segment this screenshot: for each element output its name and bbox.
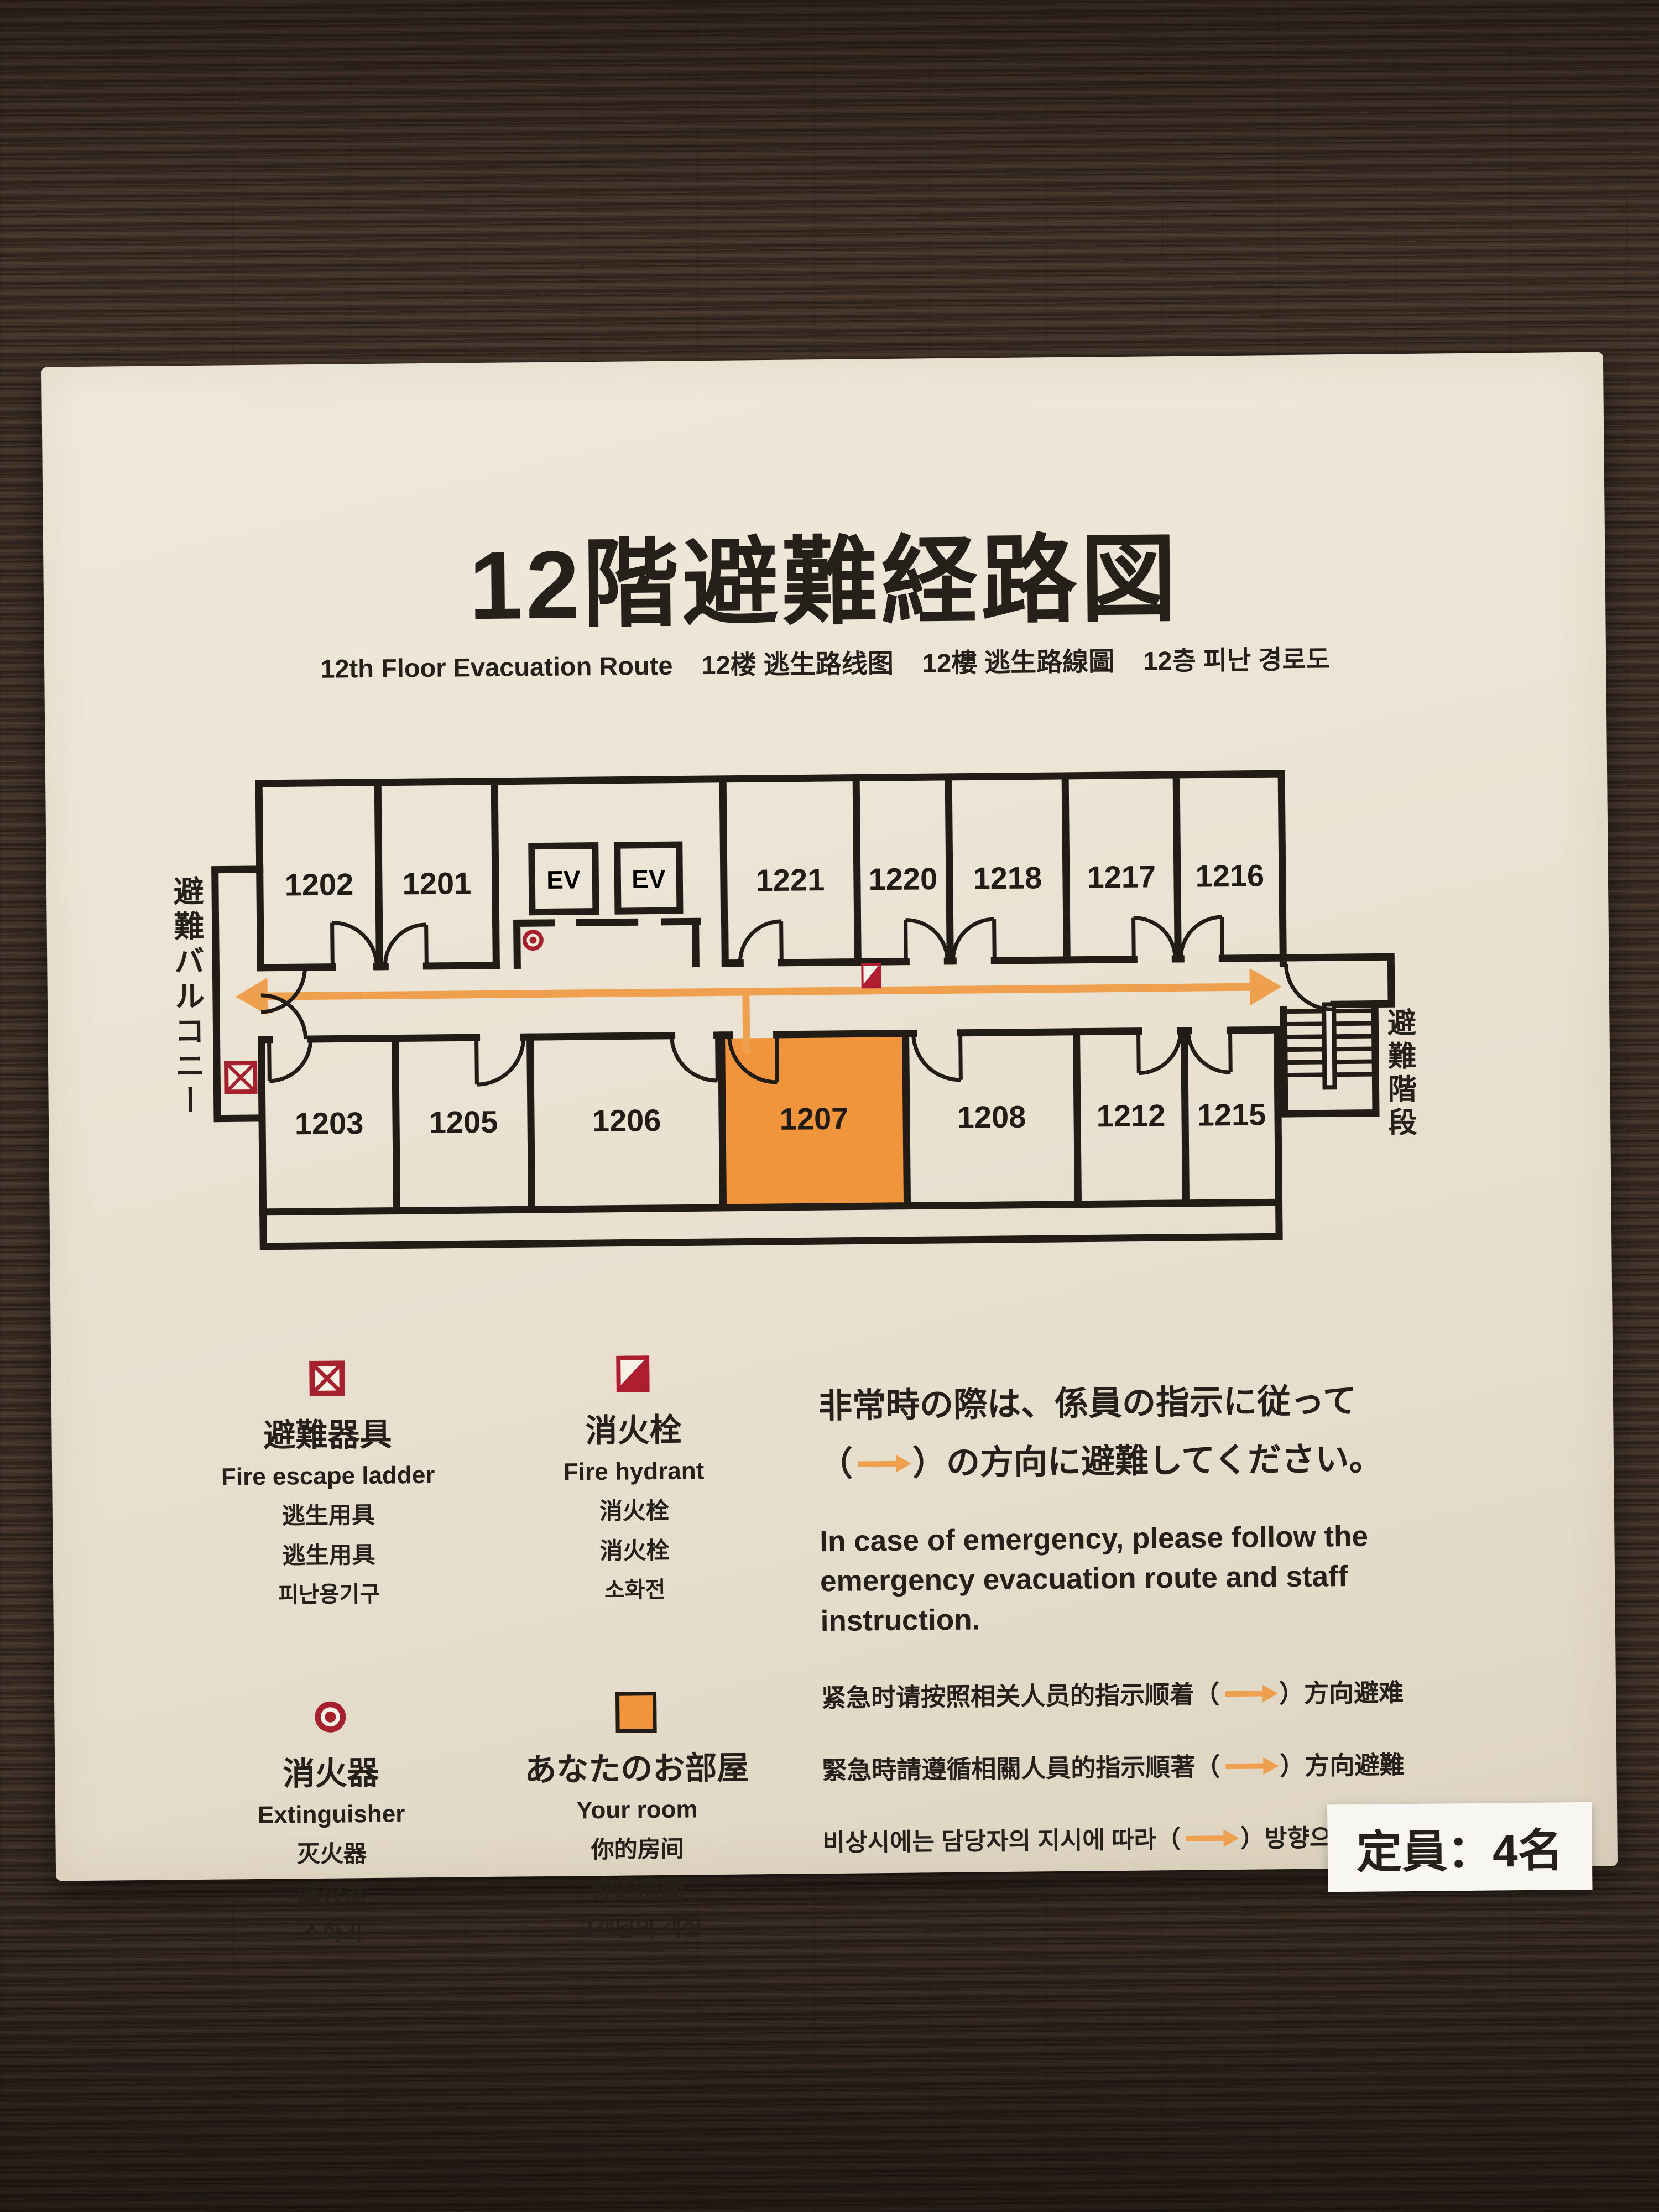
route-arrow-icon bbox=[1225, 1691, 1265, 1697]
room-1217-label: 1217 bbox=[1087, 859, 1156, 894]
legend-label-en: Your room bbox=[576, 1790, 698, 1830]
room-1206-label: 1206 bbox=[592, 1103, 661, 1138]
extinguisher-marker-icon bbox=[523, 930, 544, 951]
room-1202-label: 1202 bbox=[284, 867, 353, 902]
subtitle-chinese-simplified: 12楼 逃生路线图 bbox=[701, 642, 894, 682]
extinguisher-icon bbox=[311, 1697, 349, 1737]
legend-label-jp: 消火栓 bbox=[585, 1409, 682, 1453]
legend-label-zh-s: 你的房间 bbox=[591, 1829, 684, 1870]
elevator-boxes: EV EV bbox=[531, 845, 680, 912]
elevator-label: EV bbox=[546, 865, 581, 894]
legend-item-extinguisher: 消火器 Extinguisher 灭火器 滅火器 소화기 bbox=[257, 1696, 406, 1953]
fire-escape-ladder-icon bbox=[309, 1358, 346, 1399]
notice-chinese-simplified: 紧急时请按照相关人员的指示顺着（）方向避难 bbox=[821, 1671, 1524, 1714]
room-1207-label: 1207 bbox=[779, 1101, 848, 1136]
room-1218-label: 1218 bbox=[973, 860, 1042, 895]
legend-label-jp: 消火器 bbox=[283, 1752, 379, 1796]
notice-japanese-line2: （）の方向に避難してください。 bbox=[819, 1428, 1522, 1493]
room-1205-label: 1205 bbox=[429, 1104, 498, 1140]
route-arrowhead-right bbox=[1249, 968, 1282, 1006]
capacity-badge: 定員：4名 bbox=[1327, 1802, 1592, 1892]
legend-label-ko: 소화전 bbox=[604, 1571, 666, 1610]
room-1221-label: 1221 bbox=[755, 862, 825, 898]
route-arrow-icon bbox=[858, 1461, 898, 1467]
notice-chinese-traditional: 緊急時請遵循相關人員的指示順著（）方向避難 bbox=[822, 1744, 1525, 1786]
fire-hydrant-icon bbox=[616, 1354, 650, 1394]
route-arrow-icon bbox=[1225, 1764, 1265, 1770]
evacuation-stairs-label: 避難階段 bbox=[1378, 1008, 1421, 1146]
room-1215-label: 1215 bbox=[1197, 1097, 1266, 1132]
floor-plan-drawing: EV EV 1202 bbox=[161, 764, 1483, 1274]
floor-plan: EV EV 1202 bbox=[161, 764, 1483, 1277]
route-arrow-icon bbox=[1186, 1836, 1226, 1842]
legend-label-zh-s: 逃生用具 bbox=[282, 1495, 375, 1536]
legend-item-fire-escape-ladder: 避難器具 Fire escape ladder 逃生用具 逃生用具 피난용기구 bbox=[220, 1358, 436, 1615]
legend-column-2: 消火栓 Fire hydrant 消火栓 消火栓 소화전 あなたのお部屋 You… bbox=[489, 1353, 782, 1949]
emergency-notice: 非常時の際は、係員の指示に従って （）の方向に避難してください。 In case… bbox=[818, 1370, 1525, 1858]
legend-label-zh-t: 滅火器 bbox=[297, 1874, 367, 1914]
legend-label-ko: 소화기 bbox=[302, 1913, 363, 1953]
fire-escape-ladder-marker-icon bbox=[226, 1063, 255, 1092]
evacuation-balcony-label: 避難バルコニー bbox=[164, 875, 211, 1136]
emergency-stairs bbox=[1284, 1004, 1375, 1088]
legend-item-your-room: あなたのお部屋 Your room 你的房间 你的房間 고객님의 객실 bbox=[524, 1691, 750, 1949]
legend-label-zh-t: 消火栓 bbox=[599, 1531, 670, 1571]
evacuation-sign: 12階避難経路図 12th Floor Evacuation Route 12楼… bbox=[41, 352, 1618, 1881]
legend-label-en: Fire hydrant bbox=[564, 1452, 705, 1491]
subtitle-korean: 12층 피난 경로도 bbox=[1143, 638, 1330, 677]
photo-of-evacuation-sign-on-wood-door: 12階避難経路図 12th Floor Evacuation Route 12楼… bbox=[0, 0, 1659, 2212]
subtitle-english: 12th Floor Evacuation Route bbox=[320, 650, 673, 684]
room-1212-label: 1212 bbox=[1096, 1098, 1165, 1133]
legend-item-fire-hydrant: 消火栓 Fire hydrant 消火栓 消火栓 소화전 bbox=[562, 1353, 706, 1610]
legend-label-zh-s: 消火栓 bbox=[599, 1491, 669, 1531]
legend-label-en: Fire escape ladder bbox=[221, 1456, 435, 1497]
legend-label-zh-s: 灭火器 bbox=[296, 1834, 367, 1874]
page-title: 12階避難経路図 bbox=[43, 497, 1605, 651]
legend-label-ko: 고객님의 객실 bbox=[574, 1908, 703, 1948]
legend-label-ko: 피난용기구 bbox=[278, 1575, 380, 1615]
room-1220-label: 1220 bbox=[868, 861, 937, 896]
room-1208-label: 1208 bbox=[957, 1099, 1026, 1135]
elevator-label: EV bbox=[632, 864, 666, 894]
legend-label-zh-t: 你的房間 bbox=[591, 1869, 685, 1910]
your-room-icon bbox=[615, 1692, 657, 1733]
legend-label-jp: あなたのお部屋 bbox=[524, 1746, 749, 1792]
legend-label-jp: 避難器具 bbox=[263, 1413, 392, 1458]
legend-label-zh-t: 逃生用具 bbox=[282, 1535, 375, 1576]
notice-japanese-line1: 非常時の際は、係員の指示に従って bbox=[818, 1370, 1521, 1435]
subtitle-chinese-traditional: 12樓 逃生路線圖 bbox=[922, 640, 1114, 680]
room-1216-label: 1216 bbox=[1195, 858, 1264, 893]
room-1203-label: 1203 bbox=[294, 1105, 363, 1141]
notice-english: In case of emergency, please follow the … bbox=[820, 1516, 1473, 1641]
fire-hydrant-marker-icon bbox=[861, 963, 881, 988]
legend-label-en: Extinguisher bbox=[257, 1794, 405, 1835]
legend-column-1: 避難器具 Fire escape ladder 逃生用具 逃生用具 피난용기구 … bbox=[183, 1357, 476, 1954]
room-1201-label: 1201 bbox=[402, 865, 471, 901]
